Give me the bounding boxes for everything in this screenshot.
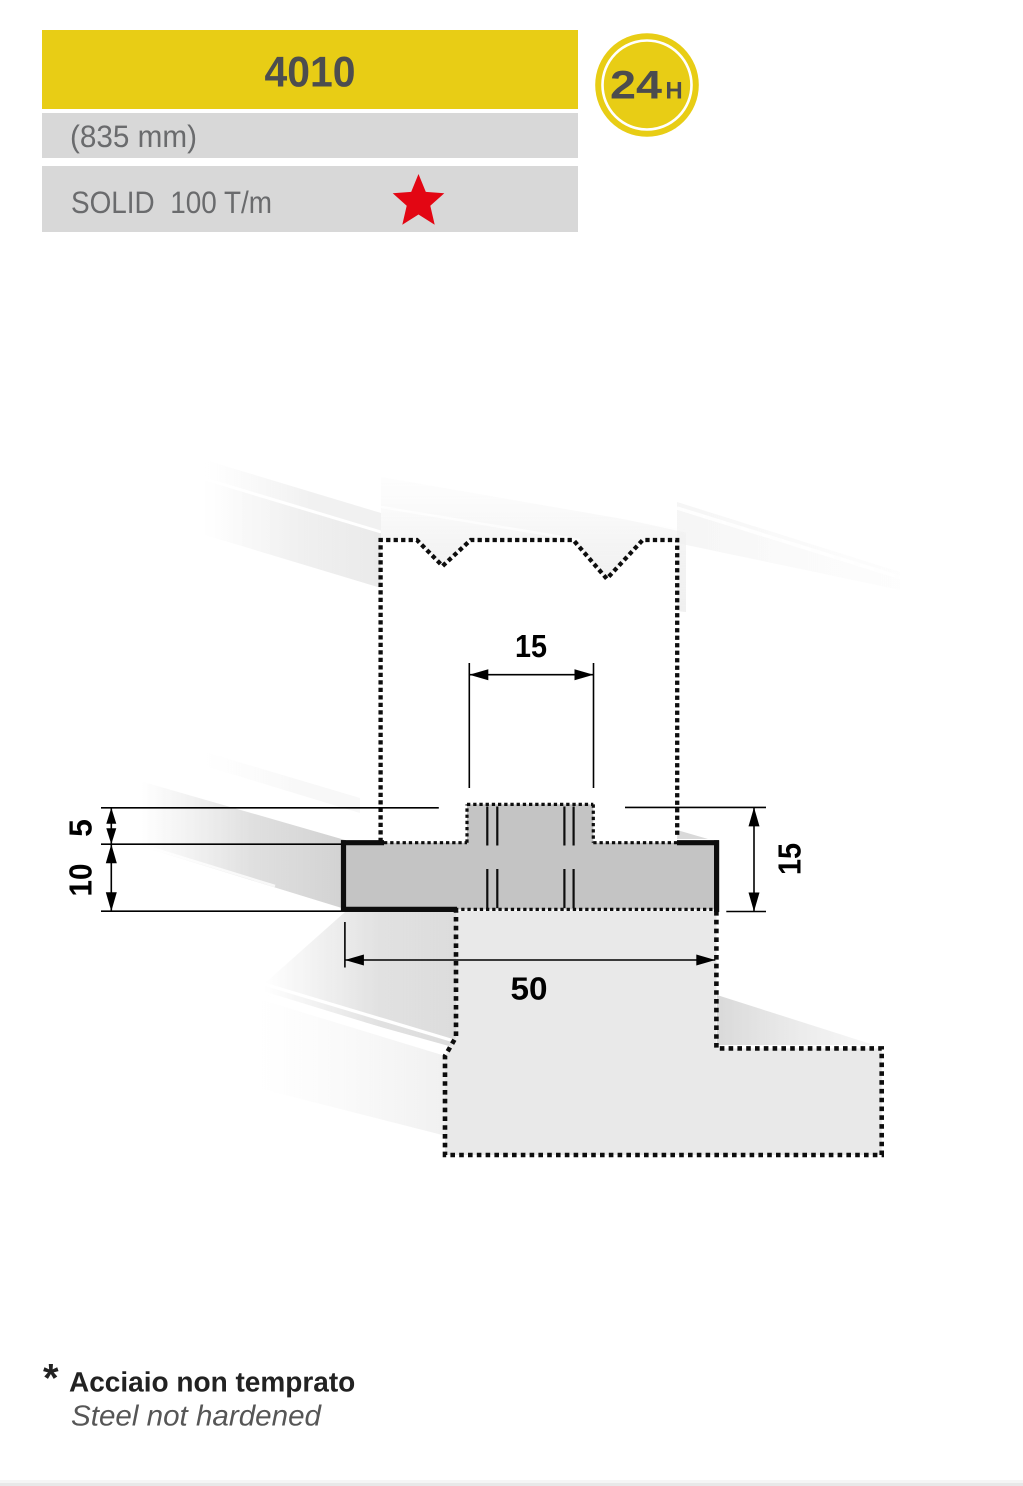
svg-text:Steel not hardened: Steel not hardened: [71, 1400, 322, 1432]
svg-text:15: 15: [772, 843, 808, 875]
svg-text:50: 50: [511, 971, 548, 1007]
svg-text:*Acciaio non temprato: *Acciaio non temprato: [43, 1357, 355, 1401]
svg-text:4010: 4010: [265, 49, 356, 97]
svg-text:24: 24: [610, 63, 663, 107]
svg-text:10: 10: [63, 864, 99, 897]
svg-text:(835 mm): (835 mm): [70, 119, 197, 154]
svg-text:SOLID 100 T/m: SOLID 100 T/m: [71, 185, 272, 220]
svg-text:15: 15: [515, 628, 547, 664]
svg-text:H: H: [665, 77, 682, 104]
svg-text:5: 5: [63, 819, 99, 837]
